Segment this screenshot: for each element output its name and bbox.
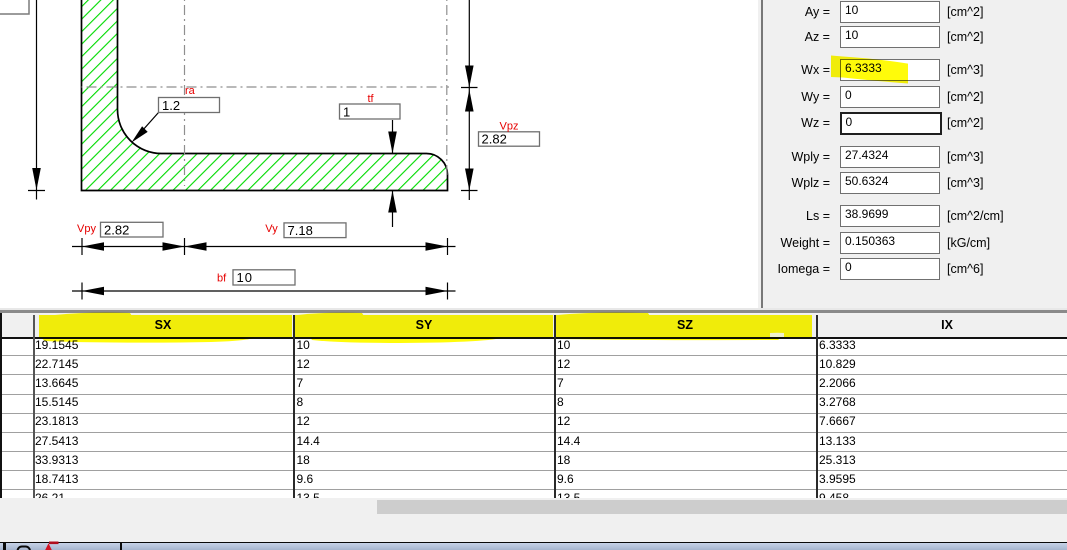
svg-text:2.82: 2.82 xyxy=(104,223,129,238)
svg-text:2.82: 2.82 xyxy=(482,132,507,147)
svg-text:7.18: 7.18 xyxy=(288,223,313,238)
svg-text:Vpy: Vpy xyxy=(77,223,96,235)
svg-text:Vy: Vy xyxy=(265,223,278,235)
svg-text:tf: tf xyxy=(368,93,375,105)
svg-text:Vpz: Vpz xyxy=(500,120,519,132)
svg-text:1: 1 xyxy=(343,105,350,120)
svg-text:1.2: 1.2 xyxy=(162,98,180,113)
svg-text:ra: ra xyxy=(185,85,196,97)
svg-text:bf: bf xyxy=(217,272,227,284)
svg-text:10: 10 xyxy=(237,270,253,285)
